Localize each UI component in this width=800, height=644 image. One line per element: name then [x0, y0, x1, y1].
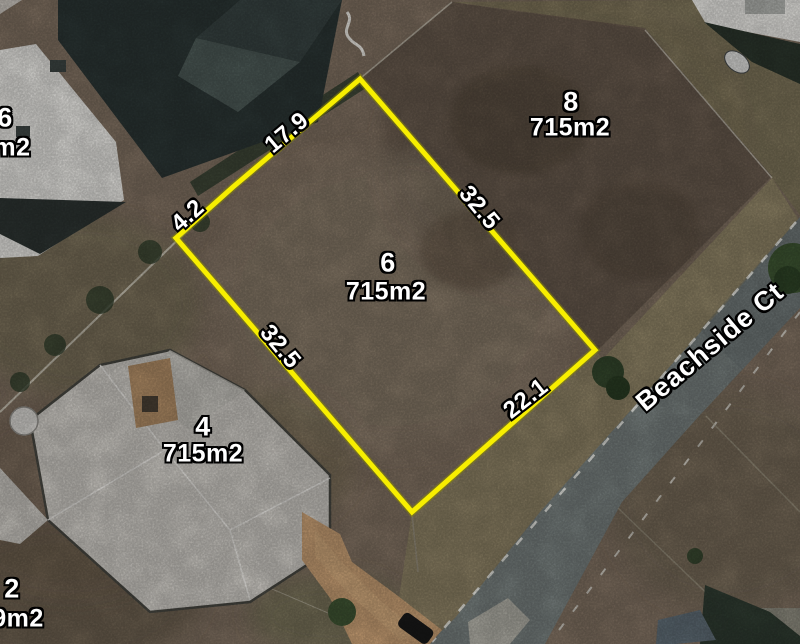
lot-nw-number-partial: 6	[0, 103, 13, 134]
lot-2-area-partial: 9m2	[0, 605, 44, 634]
lot-4-area: 715m2	[163, 440, 243, 469]
photo-grain	[0, 0, 800, 644]
aerial-lot-map: 6 715m2 8 715m2 4 715m2 2 9m2 6 m2 17.9 …	[0, 0, 800, 644]
lot-nw-area-partial: m2	[0, 134, 31, 163]
lot-6-area: 715m2	[346, 278, 426, 307]
lot-6-number: 6	[380, 248, 396, 279]
lot-4-number: 4	[195, 412, 211, 443]
lot-8-area: 715m2	[530, 114, 610, 143]
lot-2-number: 2	[4, 574, 20, 605]
satellite-photo	[0, 0, 800, 644]
